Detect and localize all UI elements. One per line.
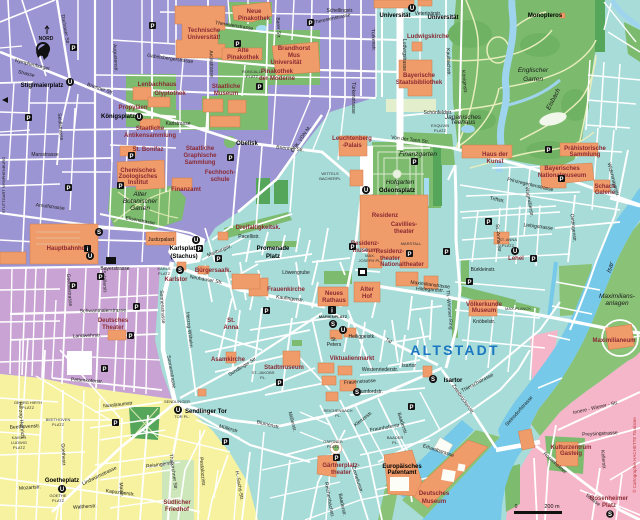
svg-text:Theater: Theater — [102, 325, 124, 331]
svg-text:Heiliggeistk.: Heiliggeistk. — [349, 334, 376, 340]
svg-text:St. Bonifaz: St. Bonifaz — [133, 147, 164, 153]
svg-text:Englischer: Englischer — [518, 67, 549, 74]
svg-text:PLATZ: PLATZ — [502, 243, 515, 248]
svg-text:P: P — [235, 42, 239, 48]
svg-text:P: P — [559, 177, 563, 183]
svg-text:Pinakothek: Pinakothek — [238, 16, 271, 22]
svg-text:Brandhorst: Brandhorst — [278, 46, 310, 52]
svg-text:Cavillies-: Cavillies- — [391, 222, 417, 228]
svg-text:Hofgarten: Hofgarten — [386, 179, 415, 186]
svg-text:(Stachus): (Stachus) — [170, 254, 197, 260]
svg-text:P: P — [66, 186, 70, 192]
svg-text:anlagen: anlagen — [605, 300, 629, 307]
svg-text:P: P — [150, 24, 154, 30]
svg-text:U: U — [137, 115, 141, 121]
svg-text:Bürkleinstr.: Bürkleinstr. — [471, 267, 496, 273]
svg-text:Museum: Museum — [422, 499, 446, 505]
svg-text:S: S — [355, 390, 359, 396]
svg-text:Justizpalast: Justizpalast — [148, 237, 175, 243]
svg-text:SENDLINGER: SENDLINGER — [164, 399, 190, 404]
svg-text:P: P — [409, 405, 413, 411]
svg-text:Dreifaltigkeitsk.: Dreifaltigkeitsk. — [236, 225, 281, 231]
svg-text:Universität!: Universität! — [187, 35, 220, 41]
svg-text:Museum: Museum — [472, 308, 496, 314]
svg-text:Karlsplatz: Karlsplatz — [170, 246, 199, 252]
svg-text:Pinakothek: Pinakothek — [227, 55, 260, 61]
svg-text:Sammlung: Sammlung — [185, 160, 216, 166]
svg-text:i: i — [331, 308, 333, 315]
svg-text:Botanischer: Botanischer — [123, 198, 158, 205]
svg-text:PL.: PL. — [392, 440, 398, 445]
svg-text:P: P — [216, 257, 220, 263]
svg-text:P: P — [486, 220, 490, 226]
svg-text:P: P — [350, 245, 354, 251]
svg-text:PL.: PL. — [260, 375, 266, 380]
svg-text:Maximilians-: Maximilians- — [599, 293, 636, 300]
svg-text:Lenbachhaus: Lenbachhaus — [138, 82, 177, 88]
svg-text:Frauenkirche: Frauenkirche — [267, 287, 305, 293]
svg-text:U: U — [68, 80, 72, 86]
svg-text:Odeonsplatz: Odeonsplatz — [379, 188, 415, 194]
svg-text:Viktualienmarkt: Viktualienmarkt — [330, 356, 375, 362]
svg-text:Goethestr.: Goethestr. — [59, 443, 66, 466]
svg-text:schule: schule — [210, 177, 230, 183]
svg-text:Alter: Alter — [132, 191, 147, 198]
svg-text:MARIENPLATZ: MARIENPLATZ — [319, 314, 348, 319]
svg-text:Museum: Museum — [214, 91, 238, 97]
svg-text:U: U — [513, 249, 517, 255]
svg-text:Isartor: Isartor — [402, 363, 417, 369]
svg-text:Rathaus: Rathaus — [322, 298, 346, 304]
svg-text:P: P — [71, 284, 75, 290]
svg-text:PLATZ: PLATZ — [434, 128, 447, 133]
svg-text:P: P — [118, 184, 122, 190]
svg-text:P: P — [277, 381, 281, 387]
svg-text:U: U — [364, 188, 368, 194]
svg-text:P: P — [444, 250, 448, 256]
svg-text:MARSTALL: MARSTALL — [401, 241, 423, 246]
svg-text:Fechhoch-: Fechhoch- — [205, 170, 235, 176]
svg-text:P: P — [467, 280, 471, 286]
svg-text:Finanzgarten: Finanzgarten — [399, 151, 437, 158]
svg-text:Friedhof: Friedhof — [165, 507, 190, 513]
svg-text:P: P — [128, 334, 132, 340]
svg-text:Glyptothek: Glyptothek — [154, 91, 186, 97]
svg-text:Nationaltheater: Nationaltheater — [380, 262, 424, 268]
svg-text:Propyläen: Propyläen — [118, 105, 147, 111]
svg-text:Veterinärstr.: Veterinärstr. — [415, 11, 442, 17]
svg-text:Kunst: Kunst — [487, 159, 504, 165]
svg-text:Deutsches: Deutsches — [98, 318, 129, 324]
svg-text:Anna: Anna — [224, 325, 240, 331]
svg-text:theater: theater — [331, 470, 352, 476]
svg-text:PLATZ: PLATZ — [158, 271, 171, 276]
svg-text:U: U — [176, 408, 180, 414]
svg-text:Finanzamt: Finanzamt — [171, 187, 201, 193]
svg-text:Patentamt: Patentamt — [387, 470, 416, 476]
svg-text:Garten: Garten — [523, 76, 543, 83]
svg-text:Gasteig: Gasteig — [560, 451, 582, 457]
svg-text:MAX-PLANCK: MAX-PLANCK — [505, 306, 531, 311]
svg-text:Obelisk: Obelisk — [236, 141, 258, 147]
svg-text:Pinakothek: Pinakothek — [261, 69, 294, 75]
svg-text:Türkenstrasse: Türkenstrasse — [350, 82, 356, 114]
svg-text:Maximilianeum: Maximilianeum — [592, 338, 635, 344]
svg-text:Bayerisches: Bayerisches — [544, 166, 580, 172]
svg-text:Bürgersaalk.: Bürgersaalk. — [195, 268, 232, 274]
svg-text:Stiglmaierplatz: Stiglmaierplatz — [21, 83, 64, 89]
svg-text:U: U — [410, 6, 414, 12]
svg-text:Asamkirche: Asamkirche — [211, 357, 246, 363]
svg-text:Residenz-: Residenz- — [376, 249, 404, 255]
svg-text:TOR PL.: TOR PL. — [174, 414, 190, 419]
svg-text:Universität: Universität — [270, 60, 301, 66]
svg-text:S: S — [431, 377, 435, 383]
svg-text:Universität: Universität — [379, 13, 410, 19]
svg-text:Graphische: Graphische — [183, 153, 217, 159]
svg-text:Staatliche: Staatliche — [186, 146, 215, 152]
svg-text:P: P — [129, 154, 133, 160]
svg-text:P: P — [71, 46, 75, 52]
svg-text:P: P — [407, 252, 411, 258]
svg-text:theater: theater — [394, 229, 415, 235]
svg-text:S: S — [178, 268, 182, 274]
svg-text:Hof: Hof — [362, 294, 373, 300]
svg-text:Antikensammlung: Antikensammlung — [124, 133, 176, 139]
svg-text:Knöbelstr.: Knöbelstr. — [473, 319, 495, 325]
svg-text:Promenade: Promenade — [257, 246, 290, 252]
svg-text:Deutsches: Deutsches — [419, 491, 450, 497]
svg-text:Technische: Technische — [188, 28, 221, 34]
svg-text:-Palais: -Palais — [342, 143, 362, 149]
svg-text:P: P — [412, 160, 416, 166]
svg-text:Alter: Alter — [360, 287, 374, 293]
svg-text:Institut: Institut — [128, 180, 148, 186]
svg-text:PL.: PL. — [335, 413, 341, 418]
svg-text:Westenriederstr.: Westenriederstr. — [362, 367, 398, 373]
svg-text:Schönfeldstr.: Schönfeldstr. — [424, 110, 453, 116]
svg-text:P: P — [197, 247, 201, 253]
svg-text:Marsstrasse: Marsstrasse — [31, 152, 58, 158]
svg-text:P: P — [308, 21, 312, 27]
svg-text:U: U — [88, 254, 92, 260]
svg-text:der Moderne: der Moderne — [259, 76, 296, 82]
svg-text:Goetheplatz: Goetheplatz — [45, 478, 79, 484]
svg-text:Königsplatz: Königsplatz — [101, 114, 135, 120]
svg-text:Pacellistr.: Pacellistr. — [238, 234, 259, 240]
svg-text:Ludwigstrasse: Ludwigstrasse — [401, 39, 407, 71]
svg-text:P: P — [134, 305, 138, 311]
svg-text:Staatliche: Staatliche — [136, 126, 165, 132]
svg-text:U: U — [60, 487, 64, 493]
svg-text:P: P — [113, 421, 117, 427]
svg-text:Lehel: Lehel — [508, 256, 524, 262]
svg-text:P: P — [531, 257, 535, 263]
svg-text:Neues: Neues — [325, 291, 344, 297]
svg-text:Alte: Alte — [237, 48, 249, 54]
svg-text:Sammlung: Sammlung — [570, 152, 601, 158]
svg-text:ALTSTADT: ALTSTADT — [410, 342, 499, 358]
svg-text:STUTTGART NYMPHENBURG: STUTTGART NYMPHENBURG — [1, 157, 6, 214]
svg-text:Residenz: Residenz — [372, 213, 398, 219]
svg-text:Staatsbibliothek: Staatsbibliothek — [396, 80, 443, 86]
svg-text:S: S — [331, 322, 335, 328]
svg-text:P: P — [257, 85, 261, 91]
svg-text:Isartor: Isartor — [444, 378, 463, 384]
svg-text:P: P — [228, 156, 232, 162]
svg-text:Südlicher: Südlicher — [163, 500, 191, 506]
svg-text:P: P — [102, 367, 106, 373]
svg-text:BACHERPL: BACHERPL — [319, 176, 341, 181]
svg-text:S: S — [608, 512, 612, 518]
svg-text:S: S — [97, 230, 101, 236]
svg-text:Leuchtenberg: Leuchtenberg — [332, 136, 372, 142]
svg-text:Karlstrasse: Karlstrasse — [165, 121, 190, 127]
svg-text:Barer Str.: Barer Str. — [274, 17, 281, 38]
svg-text:St.: St. — [227, 318, 235, 324]
svg-text:Teehaus: Teehaus — [451, 119, 476, 126]
svg-text:Kaulbachstr.: Kaulbachstr. — [445, 48, 452, 76]
svg-text:Hauptbahnhof: Hauptbahnhof — [47, 246, 89, 252]
svg-text:Monopteros: Monopteros — [528, 13, 563, 19]
svg-text:© Cartographie HACHETTE Touris: © Cartographie HACHETTE Tourisme — [631, 417, 637, 493]
svg-text:P: P — [98, 275, 102, 281]
svg-text:PLATZ: PLATZ — [246, 74, 259, 79]
svg-text:NORD: NORD — [39, 36, 54, 42]
svg-text:Sendlinger Tor: Sendlinger Tor — [185, 409, 228, 415]
svg-text:Arcisstrasse: Arcisstrasse — [208, 50, 215, 78]
svg-text:Mus: Mus — [288, 53, 301, 59]
svg-text:Ludwigskirche: Ludwigskirche — [407, 34, 450, 40]
svg-text:Peters: Peters — [327, 342, 342, 348]
svg-text:U: U — [194, 238, 198, 244]
svg-text:Karlstor: Karlstor — [164, 277, 188, 283]
svg-text:Platz: Platz — [602, 503, 616, 509]
svg-text:PLATZ: PLATZ — [327, 444, 340, 449]
svg-text:Neue: Neue — [247, 9, 262, 15]
svg-text:P: P — [546, 148, 550, 154]
svg-text:Türkenstr.: Türkenstr. — [369, 29, 376, 52]
svg-text:P: P — [223, 440, 227, 446]
svg-text:PLATZ: PLATZ — [52, 422, 65, 427]
svg-text:P: P — [334, 456, 338, 462]
svg-text:Staatliche: Staatliche — [212, 84, 241, 90]
svg-text:Landwehrstr.: Landwehrstr. — [73, 333, 102, 340]
svg-text:200 m: 200 m — [544, 504, 560, 510]
svg-text:Bayerische: Bayerische — [403, 73, 436, 79]
svg-text:PLATZ: PLATZ — [52, 498, 65, 503]
svg-text:P: P — [264, 309, 268, 315]
svg-text:0: 0 — [515, 504, 518, 510]
svg-text:Platz: Platz — [266, 254, 280, 260]
svg-text:PLATZ: PLATZ — [13, 445, 26, 450]
svg-text:JOSEPH PL.: JOSEPH PL. — [358, 258, 381, 263]
svg-text:Löwengrube: Löwengrube — [282, 270, 310, 276]
svg-text:U: U — [341, 328, 345, 334]
svg-text:Galerie: Galerie — [595, 190, 616, 196]
svg-text:Schwanthalerstrasse: Schwanthalerstrasse — [80, 308, 127, 315]
svg-text:Haus der: Haus der — [482, 152, 508, 158]
svg-text:P: P — [26, 116, 30, 122]
svg-text:Garten: Garten — [130, 205, 150, 212]
